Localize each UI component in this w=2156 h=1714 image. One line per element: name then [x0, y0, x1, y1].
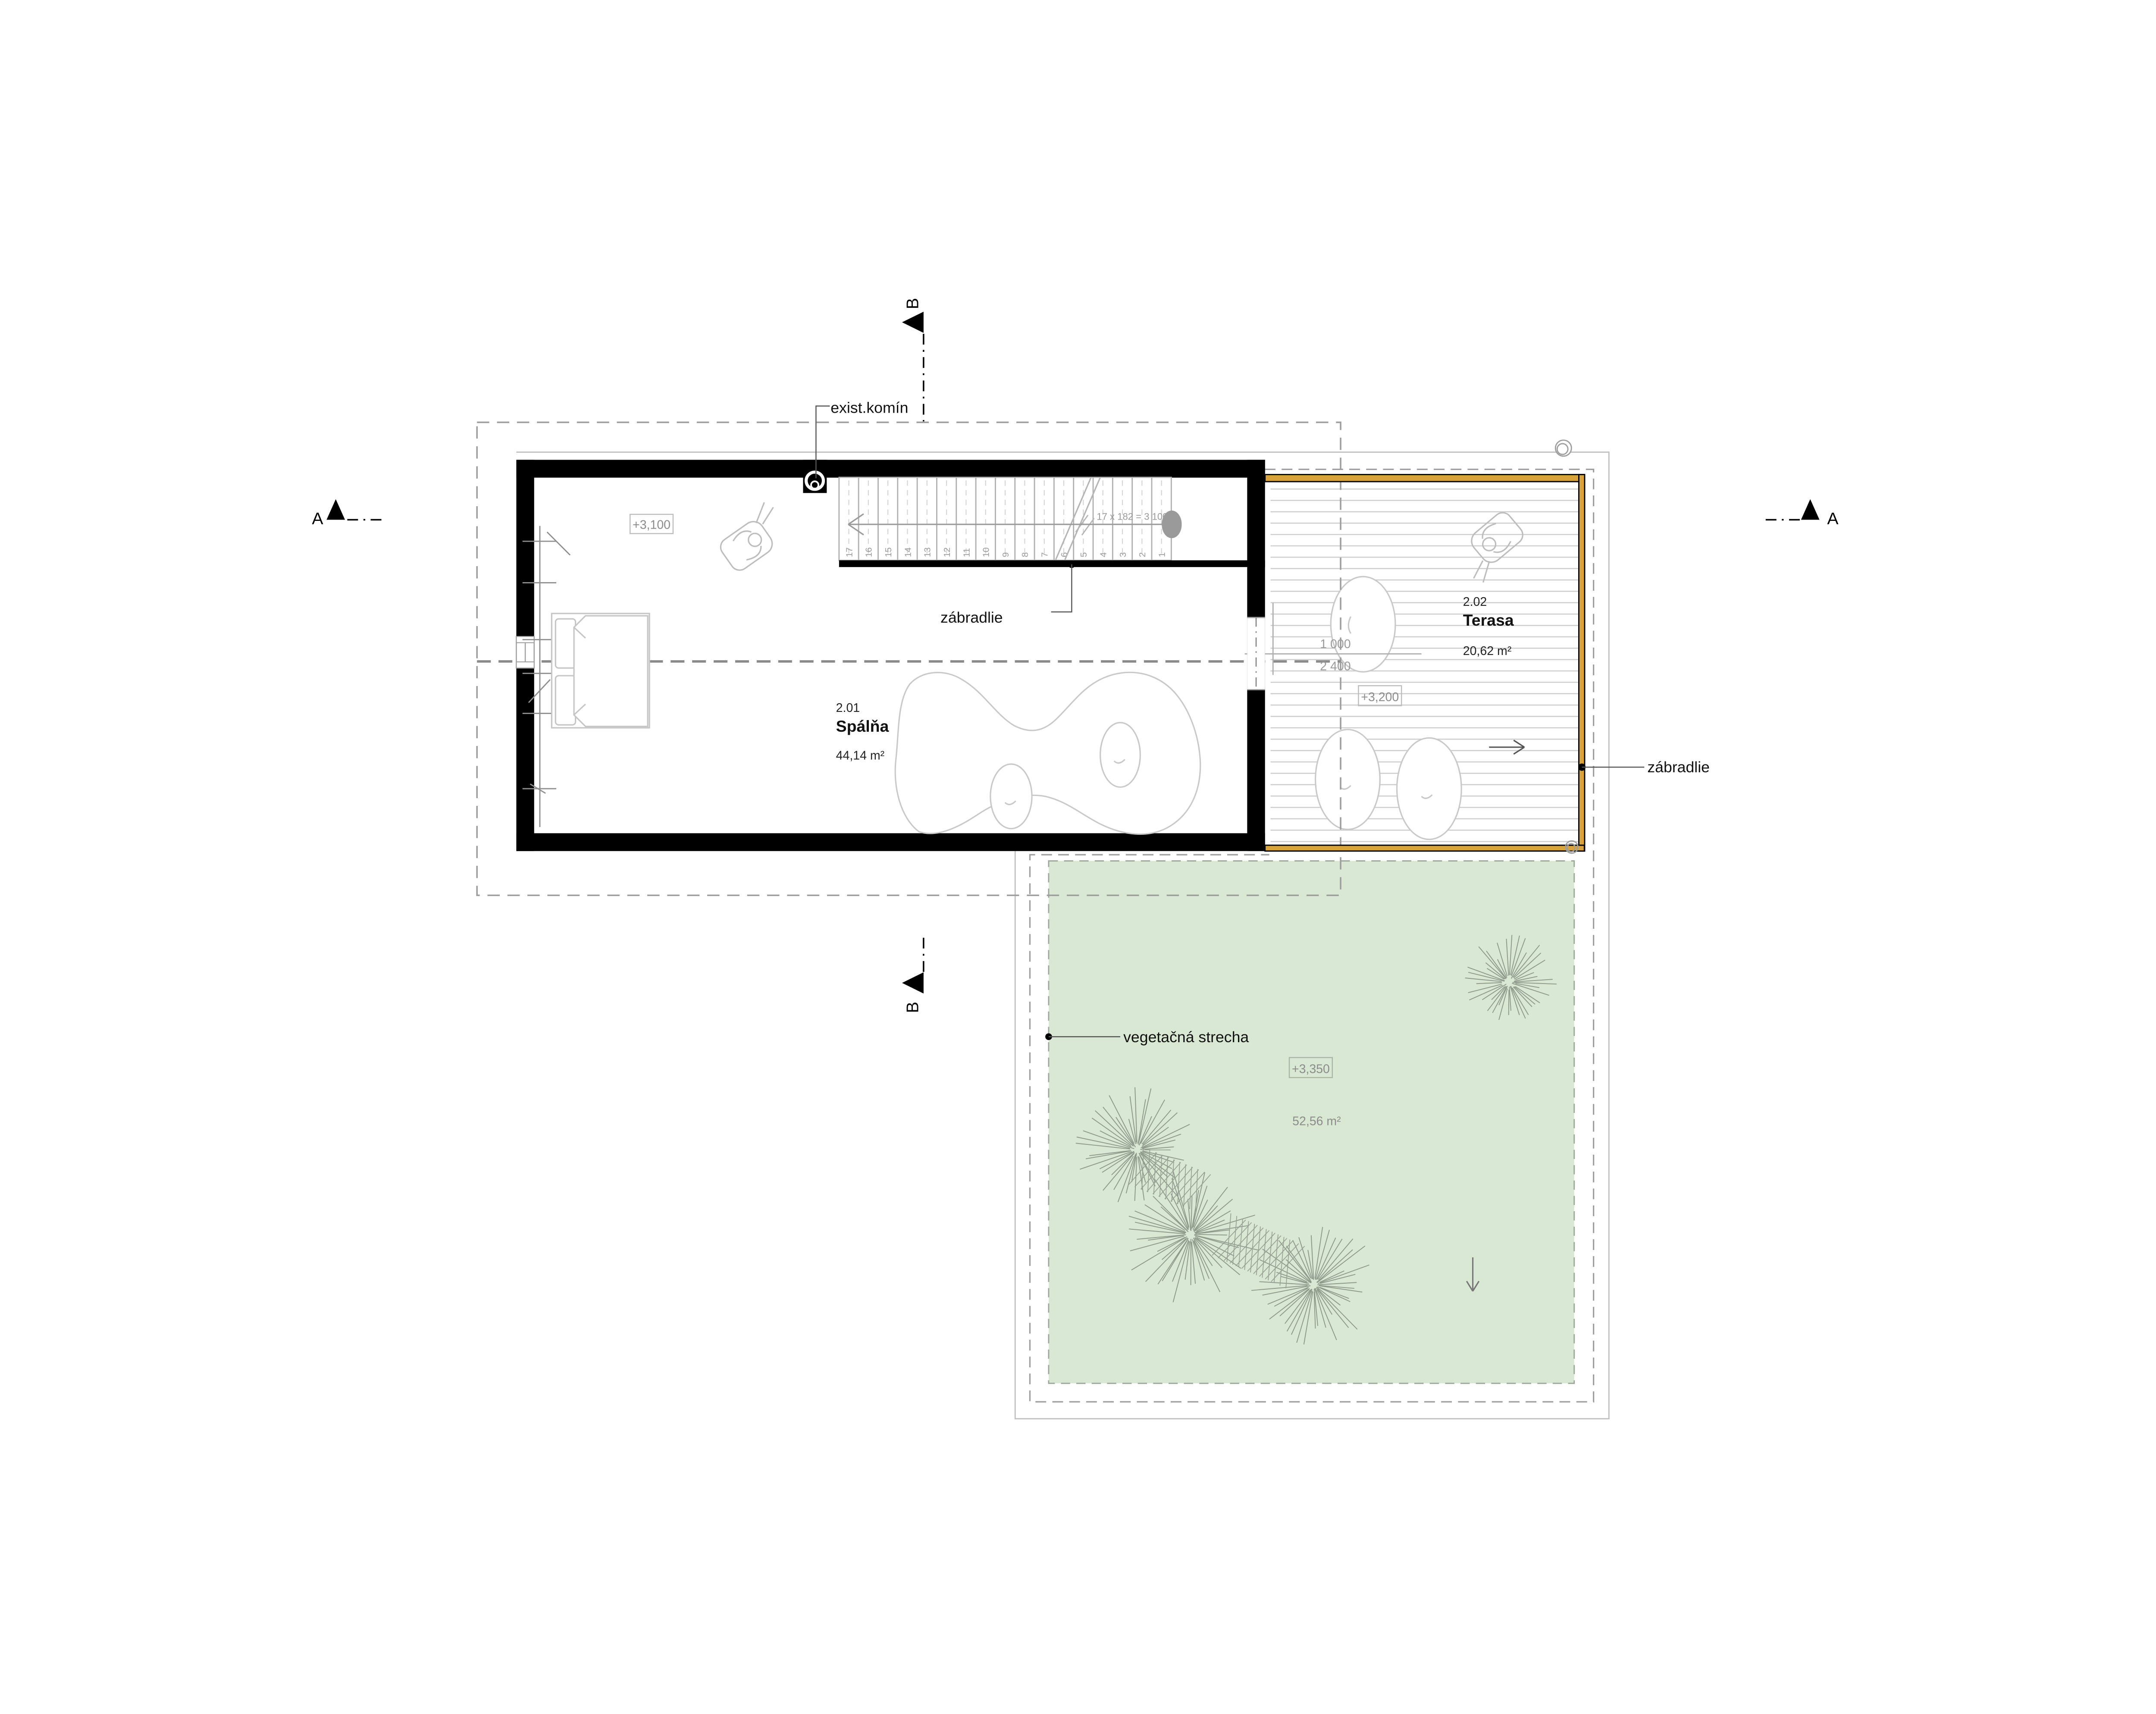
floor-plan-stage: 1 000 2 400 [0, 246, 2156, 1468]
section-arrow-icon [902, 312, 924, 333]
room-number: 2.01 [836, 701, 860, 715]
stair-tread-number: 11 [962, 548, 971, 557]
dimension-height: 2 400 [1320, 659, 1351, 673]
dimension-width: 1 000 [1320, 637, 1351, 651]
section-arrow-icon [902, 972, 924, 993]
stair-tread-number: 17 [844, 547, 854, 557]
stair-tread-number: 14 [903, 547, 913, 557]
stair-tread-number: 8 [1020, 552, 1030, 558]
section-marker-a-left: A [312, 499, 382, 528]
terrace-pouf [1316, 730, 1380, 830]
stair-tread-number: 4 [1099, 552, 1109, 558]
terrace-furniture [1316, 577, 1462, 839]
section-letter-a: A [312, 510, 323, 528]
stair-tread-number: 2 [1138, 552, 1147, 558]
room-number: 2.02 [1463, 595, 1487, 609]
right-arrow-icon [1489, 740, 1524, 754]
room-area: 20,62 m² [1463, 644, 1511, 658]
bedroom-pouf [990, 764, 1032, 829]
section-letter-b: B [903, 298, 922, 309]
room-label-bedroom: 2.01 Spálňa 44,14 m² [836, 701, 890, 762]
terrace-railing-label: zábradlie [1578, 758, 1710, 776]
section-marker-b-bottom: B [902, 938, 924, 1013]
section-arrow-icon [326, 499, 345, 520]
bedroom-pouf [1100, 723, 1141, 787]
stair-tread-number: 13 [923, 547, 933, 557]
pillow [555, 619, 575, 668]
elevation-terrace: +3,200 [1358, 686, 1401, 705]
stair-tread-number: 12 [942, 547, 952, 557]
duvet [574, 616, 648, 727]
green-roof-text: vegetačná strecha [1123, 1028, 1249, 1046]
bed [552, 614, 649, 728]
person-chair-icon [1452, 509, 1531, 585]
railing-label-stairs: zábradlie [940, 609, 1003, 626]
green-roof-area-label: 52,56 m² [1292, 1114, 1341, 1128]
room-name: Spálňa [836, 717, 890, 735]
stair-tread-number: 15 [884, 547, 893, 557]
stair-tread-number: 1 [1157, 552, 1167, 558]
floor-plan-drawing: 1 000 2 400 [0, 246, 2156, 1468]
terrace-pouf [1397, 738, 1461, 839]
stair-tread-number: 7 [1040, 552, 1050, 558]
section-arrow-icon [1801, 499, 1820, 520]
elevation-bedroom: +3,100 [630, 514, 673, 534]
door-dimension: 1 000 2 400 [1245, 637, 1422, 674]
elevation-value: +3,100 [633, 518, 671, 532]
elevation-value: +3,200 [1361, 690, 1399, 704]
elevation-value: +3,350 [1292, 1062, 1330, 1076]
person-chair-icon [713, 500, 793, 574]
chimney-text: exist.komín [830, 399, 908, 417]
stair-tread-number: 5 [1079, 552, 1089, 558]
wall-bottom [516, 833, 1265, 851]
room-area: 44,14 m² [836, 749, 884, 762]
chimney [803, 460, 827, 493]
stair-tread-number: 9 [1001, 552, 1011, 558]
roof-drain [1555, 440, 1578, 853]
section-letter-a: A [1827, 510, 1839, 528]
stair-tread-number: 3 [1118, 552, 1128, 558]
rug-organic [895, 672, 1200, 834]
section-letter-b: B [903, 1002, 922, 1013]
stair-tread-number: 10 [981, 547, 991, 557]
stair-tread-number: 16 [864, 547, 874, 557]
room-label-terrace: 2.02 Terasa 20,62 m² [1463, 595, 1514, 658]
section-marker-a-right: A [1766, 499, 1839, 528]
window-left-wall [516, 636, 534, 668]
room-name: Terasa [1463, 611, 1514, 629]
railing-label-terrace: zábradlie [1647, 758, 1710, 776]
stair-railing-bar [839, 560, 1265, 567]
wall-top [516, 460, 1265, 477]
stair-formula: 17 x 182 = 3 100 [1097, 511, 1168, 522]
pillow [555, 676, 575, 725]
tree [1509, 990, 1509, 1015]
